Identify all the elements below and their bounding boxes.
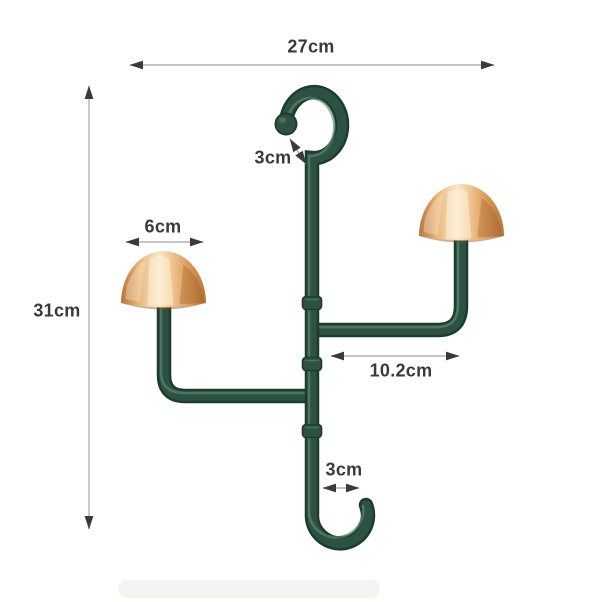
- label-overall-width: 27cm: [287, 37, 334, 58]
- label-arm-length: 10.2cm: [370, 361, 433, 382]
- left-arm-tube: [161, 300, 309, 396]
- right-arm-tube: [316, 232, 461, 330]
- wall-hook-body: [121, 92, 504, 543]
- left-gold-knob: [121, 251, 206, 310]
- top-hook-ball-tip: [276, 114, 297, 135]
- product-dimension-diagram: 27cm 31cm 3cm 6cm 10.2cm 3cm: [0, 0, 602, 602]
- dim-arrow-top-hook-opening: [290, 139, 306, 164]
- backdrop-shadow: [118, 580, 380, 598]
- right-gold-knob: [419, 184, 504, 243]
- label-overall-height: 31cm: [33, 301, 80, 322]
- diagram-canvas: [0, 0, 602, 602]
- label-top-hook-opening: 3cm: [255, 148, 292, 169]
- label-bottom-hook-opening: 3cm: [326, 460, 363, 481]
- label-knob-diameter: 6cm: [145, 217, 182, 238]
